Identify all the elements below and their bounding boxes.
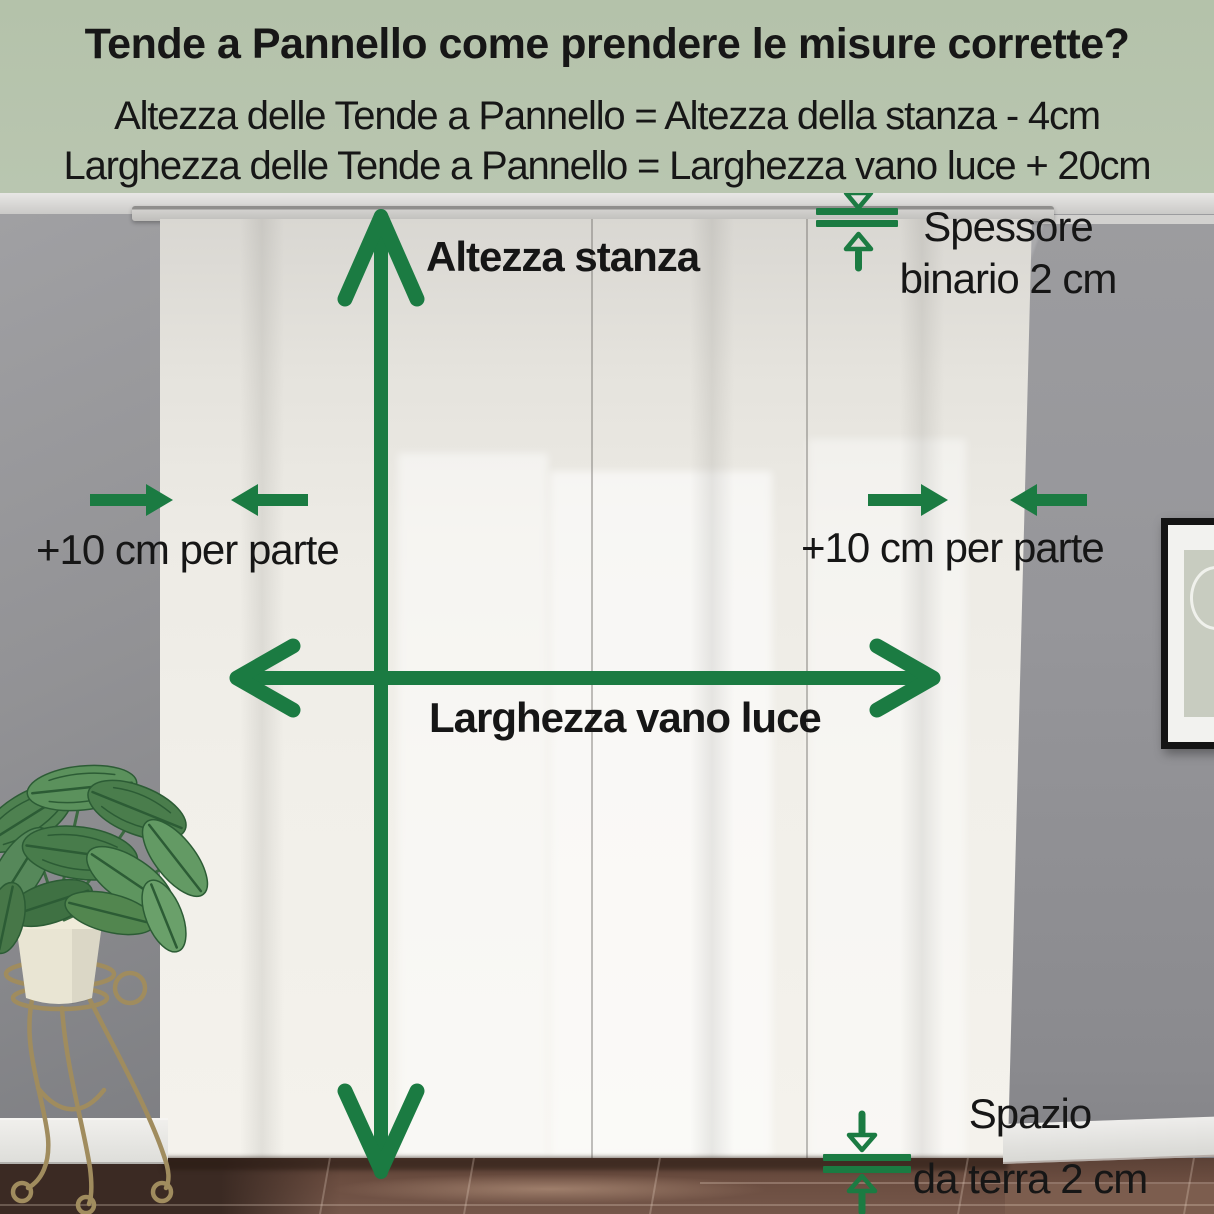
- curtain-fold: [690, 219, 734, 1163]
- width-formula-text: Larghezza delle Tende a Pannello = Largh…: [0, 144, 1214, 189]
- panel-seam-3: [806, 219, 808, 1163]
- wall-corner-sheen: [1003, 214, 1214, 474]
- floor-light-reflection: [330, 1174, 770, 1204]
- opening-width-label: Larghezza vano luce: [429, 694, 821, 742]
- floor-gap-label-line2: da terra 2 cm: [880, 1155, 1180, 1203]
- picture-frame: [1161, 518, 1214, 749]
- frame-artwork: [1184, 550, 1214, 717]
- window-glow-center: [550, 471, 772, 1157]
- height-formula-text: Altezza delle Tende a Pannello = Altezza…: [0, 94, 1214, 139]
- room-height-label: Altezza stanza: [426, 233, 699, 281]
- header-band: Tende a Pannello come prendere le misure…: [0, 0, 1214, 193]
- panel-curtains: [160, 219, 1032, 1163]
- potted-plant: [0, 748, 242, 1214]
- infographic-canvas: Tende a Pannello come prendere le misure…: [0, 0, 1214, 1214]
- window-glow-left: [398, 453, 548, 1157]
- curtain-fold: [900, 219, 944, 1163]
- panel-seam-1: [375, 219, 377, 1163]
- track-thickness-label-line2: binario 2 cm: [858, 255, 1158, 303]
- page-title: Tende a Pannello come prendere le misure…: [0, 20, 1214, 69]
- floor-gap-label-line1: Spazio: [900, 1090, 1160, 1138]
- frame-mat: [1168, 525, 1214, 742]
- side-margin-left-label: +10 cm per parte: [36, 526, 339, 574]
- artwork-circle: [1190, 566, 1214, 630]
- side-margin-right-label: +10 cm per parte: [801, 524, 1104, 572]
- curtain-fold: [240, 219, 284, 1163]
- panel-seam-2: [591, 219, 593, 1163]
- track-thickness-label-line1: Spessore: [878, 203, 1138, 251]
